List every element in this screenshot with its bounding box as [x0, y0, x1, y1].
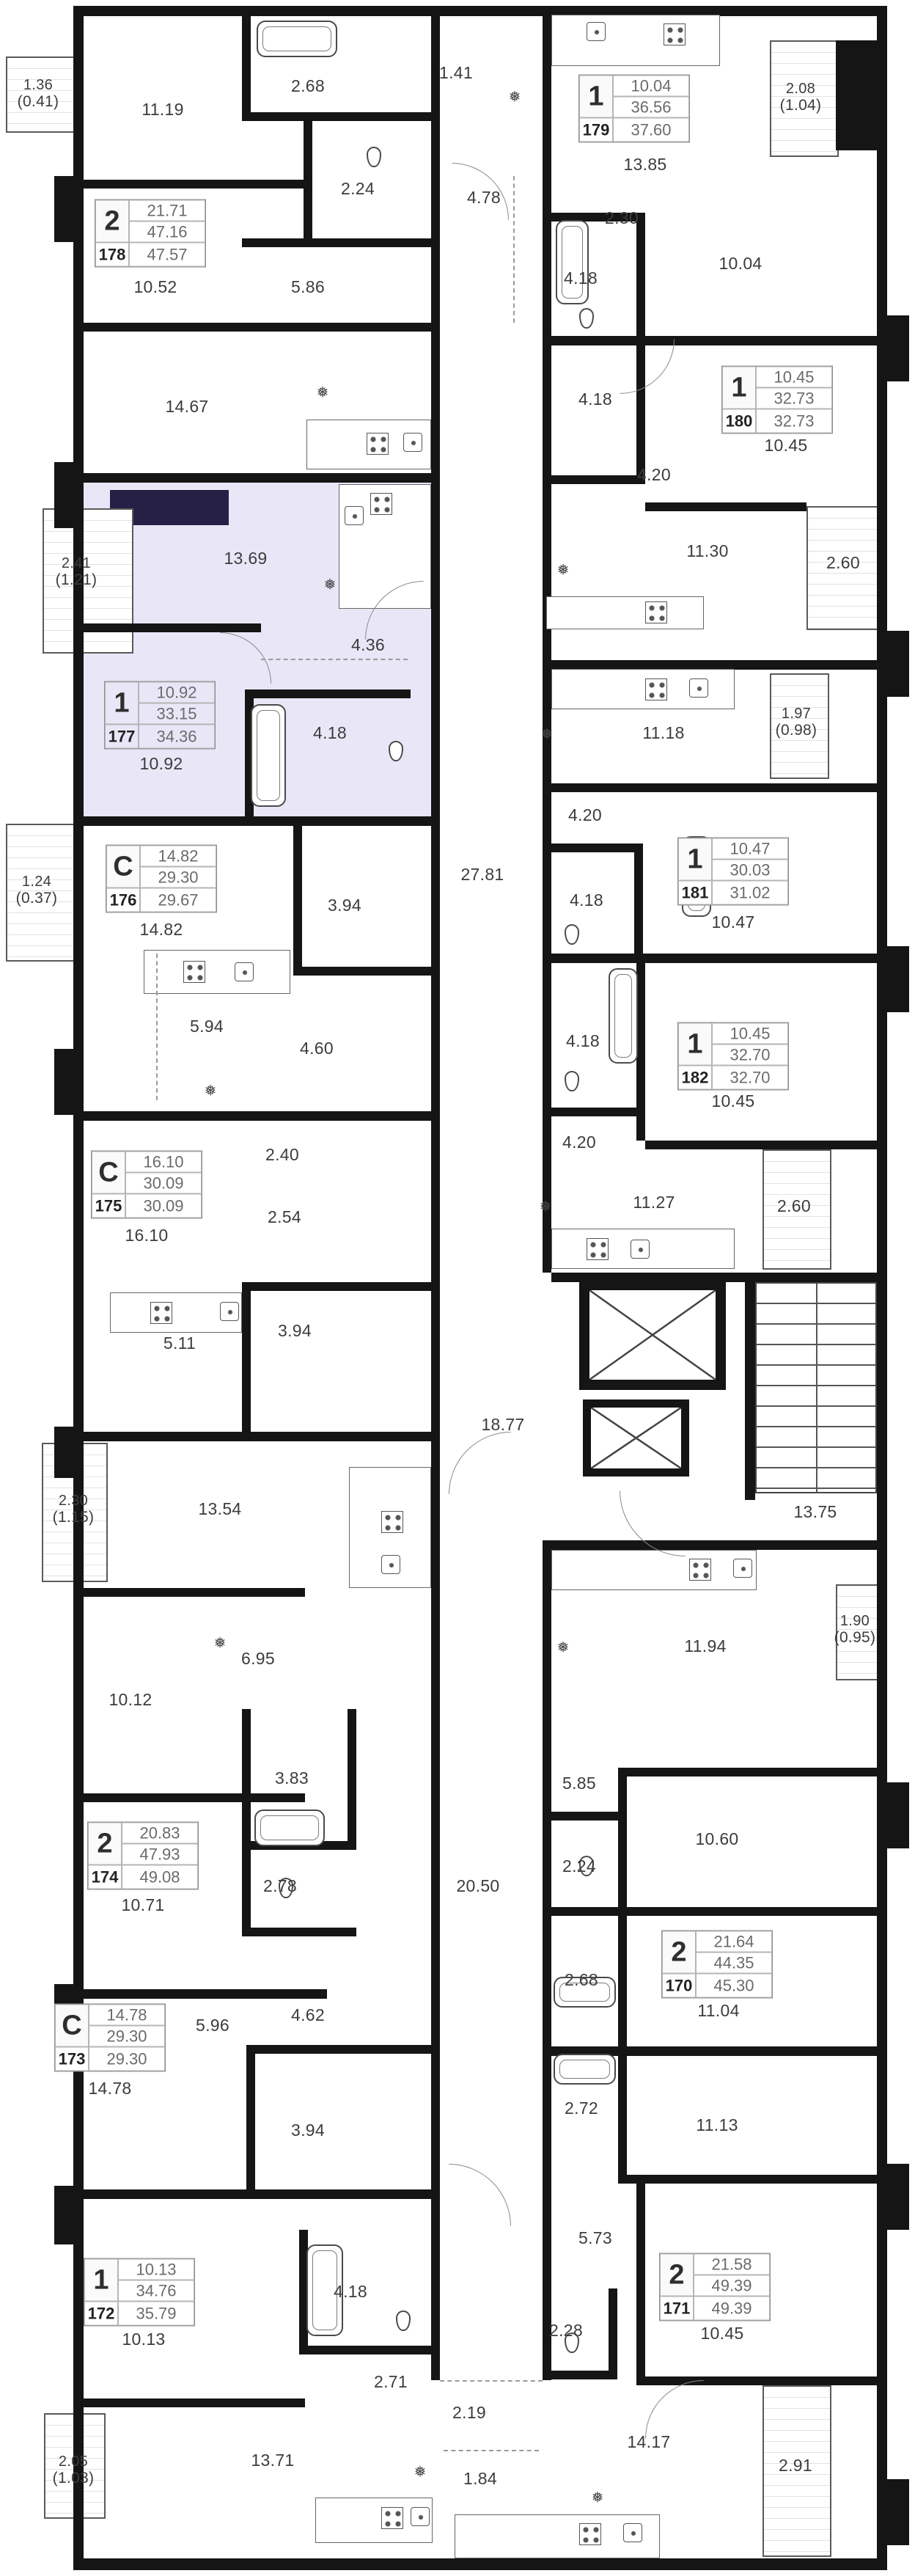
wall	[84, 1111, 431, 1121]
stairwell	[755, 1282, 877, 1493]
room-area-label: 4.36	[351, 636, 385, 655]
room-area-label: 10.45	[711, 1092, 754, 1111]
total-area: 49.08	[122, 1865, 198, 1889]
fridge-icon: ❅	[214, 1634, 227, 1653]
floor-plan: ❅❅❅❅❅❅❅❅❅❅❅ 11.192.682.245.8610.5214.671…	[0, 0, 915, 2576]
sink-icon	[220, 1302, 239, 1321]
wall	[551, 954, 877, 963]
column-pier	[887, 2479, 909, 2545]
wall	[84, 1588, 305, 1597]
door-arc	[449, 2164, 511, 2226]
area-without-balcony: 30.03	[712, 860, 788, 881]
room-area-label: 5.96	[196, 2016, 229, 2035]
wall	[73, 6, 84, 2570]
room-area-label: 10.47	[711, 913, 754, 932]
sink-icon	[631, 1240, 650, 1259]
apartment-type: 1	[722, 367, 756, 409]
wall	[84, 1793, 305, 1802]
stove-icon	[664, 23, 686, 45]
wall	[618, 1768, 627, 2046]
room-area-label: 2.78	[263, 1877, 297, 1896]
balcony-area-label: 1.97(0.98)	[776, 706, 817, 739]
apartment-type: С	[106, 846, 140, 888]
door-arc	[620, 339, 675, 394]
room-area-label: 10.60	[695, 1830, 738, 1849]
zone-dash	[444, 2450, 539, 2453]
balcony-counted-area: (0.95)	[834, 1629, 876, 1647]
room-area-label: 4.62	[291, 2006, 325, 2025]
room-area-label: 10.71	[121, 1896, 164, 1915]
room-area-label: 5.73	[578, 2229, 612, 2248]
wall	[618, 2046, 627, 2175]
bathtub	[257, 21, 337, 57]
wall	[551, 1108, 645, 1116]
living-area: 10.13	[118, 2259, 194, 2280]
wall	[551, 2371, 617, 2379]
wall	[242, 1928, 356, 1936]
apartment-number: 173	[55, 2047, 89, 2071]
balcony-counted-area: (0.98)	[776, 722, 817, 739]
room-area-label: 1.41	[439, 64, 473, 83]
room-area-label: 11.27	[633, 1193, 675, 1212]
room-area-label: 4.18	[566, 1032, 600, 1051]
fridge-icon: ❅	[205, 1082, 217, 1100]
stove-icon	[370, 493, 392, 515]
sink-icon	[345, 506, 364, 525]
zone-dash	[261, 659, 408, 662]
room-area-label: 14.78	[88, 2079, 131, 2099]
bathtub	[254, 1810, 325, 1846]
room-area-label: 2.24	[562, 1857, 596, 1876]
living-area: 10.47	[712, 838, 788, 860]
apartment-info-box-178[interactable]: 221.7147.1617847.57	[95, 200, 206, 268]
apartment-number: 171	[660, 2297, 694, 2321]
room-area-label: 4.18	[570, 891, 603, 910]
kitchen-counter	[551, 1550, 757, 1590]
apartment-number: 170	[662, 1974, 696, 1998]
room-area-label: 10.92	[139, 755, 183, 774]
room-area-label: 14.67	[165, 398, 208, 417]
wall	[543, 1540, 551, 2380]
zone-dash	[156, 954, 159, 1100]
room-area-label: 2.19	[452, 2404, 486, 2423]
column-pier	[887, 1782, 909, 1848]
room-area-label: 4.18	[578, 390, 612, 409]
room-area-label: 11.18	[642, 724, 684, 743]
balcony-counted-area: (1.21)	[56, 571, 98, 589]
balcony-area-label: 2.05(1.03)	[53, 2454, 95, 2487]
wall	[73, 2558, 887, 2570]
wall	[84, 473, 431, 483]
room-area-label: 5.85	[562, 1774, 596, 1793]
area-without-balcony: 36.56	[613, 97, 689, 118]
wall	[84, 180, 305, 189]
wall	[84, 623, 261, 632]
wall	[242, 1282, 251, 1432]
balcony-counted-area: (1.03)	[53, 2470, 95, 2487]
total-area: 49.39	[694, 2297, 770, 2321]
room-area-label: 2.72	[565, 2099, 598, 2118]
room-area-label: 3.94	[291, 2121, 325, 2140]
sink-icon	[689, 678, 708, 698]
wall	[431, 15, 440, 2380]
fridge-icon: ❅	[557, 1639, 570, 1657]
stove-icon	[183, 961, 205, 983]
wall	[636, 2376, 877, 2385]
apartment-info-box-172[interactable]: 110.1334.7617235.79	[84, 2258, 195, 2327]
room-area-label: 3.83	[275, 1769, 309, 1788]
sink-icon	[623, 2523, 642, 2542]
sink-icon	[733, 1559, 752, 1578]
wall	[84, 2189, 431, 2199]
fridge-icon: ❅	[317, 384, 329, 402]
wall	[84, 816, 431, 826]
wall	[304, 121, 312, 238]
wall	[636, 2175, 645, 2376]
bathtub	[251, 704, 286, 807]
apartment-number: 179	[579, 118, 613, 142]
total-area: 34.36	[139, 725, 215, 749]
living-area: 10.92	[139, 682, 215, 703]
room-area-label: 3.94	[328, 896, 361, 915]
room-area-label: 10.04	[719, 255, 762, 274]
apartment-type: 2	[660, 2254, 694, 2297]
balcony-counted-area: (1.15)	[53, 1509, 95, 1526]
apartment-info-box-176[interactable]: С14.8229.3017629.67	[106, 845, 217, 913]
apartment-type: 1	[678, 1023, 712, 1066]
living-area: 10.45	[756, 367, 832, 388]
room-area-label: 16.10	[125, 1226, 168, 1245]
area-without-balcony: 33.15	[139, 703, 215, 725]
room-area-label: 20.50	[456, 1877, 499, 1896]
column-pier	[54, 1427, 73, 1478]
column-pier	[887, 2164, 909, 2230]
room-area-label: 2.30	[605, 209, 639, 228]
area-without-balcony: 44.35	[696, 1953, 772, 1974]
room-area-label: 4.18	[313, 724, 347, 743]
apartment-number: 177	[105, 725, 139, 749]
wall	[245, 689, 411, 698]
living-area: 16.10	[125, 1152, 202, 1173]
sink-icon	[235, 962, 254, 981]
wall	[246, 2045, 431, 2054]
fridge-icon: ❅	[414, 2463, 427, 2481]
stove-icon	[689, 1559, 711, 1581]
apartment-type: 1	[678, 838, 712, 881]
apartment-number: 174	[88, 1865, 122, 1889]
apartment-number: 180	[722, 409, 756, 433]
stove-icon	[587, 1238, 609, 1260]
apartment-number: 176	[106, 888, 140, 912]
stove-icon	[645, 678, 667, 700]
stove-icon	[381, 1511, 403, 1533]
elevator-shaft	[583, 1399, 689, 1477]
door-arc	[645, 2380, 704, 2439]
wall	[551, 1540, 877, 1550]
apartment-info-box-171[interactable]: 221.5849.3917149.39	[659, 2253, 771, 2321]
apartment-info-box-173[interactable]: С14.7829.3017329.30	[54, 2004, 166, 2072]
wall	[84, 1432, 431, 1441]
living-area: 21.64	[696, 1931, 772, 1953]
living-area: 14.78	[89, 2005, 165, 2026]
column-pier	[54, 2186, 73, 2244]
wall	[242, 1709, 251, 1929]
fridge-icon: ❅	[557, 561, 570, 579]
apartment-type: С	[55, 2005, 89, 2047]
column-pier	[54, 462, 73, 528]
balcony-area-label: 2.30(1.15)	[53, 1493, 95, 1526]
room-area-label: 2.68	[291, 77, 325, 96]
kitchen-counter	[144, 950, 290, 994]
area-without-balcony: 30.09	[125, 1173, 202, 1194]
wall	[745, 1273, 755, 1500]
stove-icon	[367, 433, 389, 455]
wall	[84, 1989, 327, 1999]
wall	[551, 783, 877, 792]
room-area-label: 2.28	[549, 2321, 583, 2341]
apartment-number: 181	[678, 881, 712, 905]
total-area: 45.30	[696, 1974, 772, 1998]
room-area-label: 11.94	[684, 1637, 726, 1656]
wall	[84, 323, 431, 332]
sink-icon	[381, 1555, 400, 1574]
room-area-label: 6.95	[241, 1650, 275, 1669]
stair-divider	[816, 1284, 817, 1492]
wall	[551, 1812, 618, 1821]
kitchen-counter	[546, 596, 704, 629]
wall	[242, 238, 431, 247]
toilet-icon	[367, 147, 381, 167]
wall	[618, 2175, 877, 2184]
toilet-icon	[565, 924, 579, 945]
room-area-label: 2.68	[565, 1971, 598, 1990]
wall	[242, 112, 431, 121]
room-area-label: 10.45	[700, 2324, 743, 2343]
bathtub	[609, 968, 638, 1064]
stove-icon	[579, 2523, 601, 2545]
balcony-area-label: 2.08(1.04)	[780, 81, 822, 114]
room-area-label: 27.81	[460, 866, 504, 885]
apartment-info-box-181[interactable]: 110.4730.0318131.02	[677, 838, 789, 906]
area-without-balcony: 34.76	[118, 2280, 194, 2302]
room-area-label: 2.60	[777, 1197, 811, 1216]
room-area-label: 11.19	[142, 100, 183, 120]
wall	[299, 2346, 431, 2354]
toilet-icon	[565, 1071, 579, 1091]
wall	[246, 2045, 255, 2189]
apartment-type: С	[92, 1152, 125, 1194]
apartment-type: 2	[662, 1931, 696, 1974]
wall	[551, 475, 645, 484]
zone-dash	[440, 2380, 543, 2383]
apartment-info-box-170[interactable]: 221.6444.3517045.30	[661, 1931, 773, 1999]
room-area-label: 2.40	[265, 1146, 299, 1165]
room-area-label: 4.78	[467, 189, 501, 208]
wall	[645, 1141, 877, 1149]
total-area: 47.57	[129, 243, 205, 267]
toilet-icon	[396, 2310, 411, 2331]
total-area: 29.67	[140, 888, 216, 912]
room-area-label: 5.11	[163, 1334, 196, 1353]
total-area: 30.09	[125, 1194, 202, 1218]
door-arc	[449, 1432, 511, 1494]
wall	[73, 6, 887, 16]
apartment-number: 182	[678, 1066, 712, 1090]
apartment-type: 1	[84, 2259, 118, 2302]
balcony-area-label: 1.90(0.95)	[834, 1613, 876, 1647]
room-area-label: 13.71	[251, 2451, 294, 2470]
room-area-label: 1.84	[463, 2470, 497, 2489]
wall	[242, 1282, 431, 1291]
living-area: 10.45	[712, 1023, 788, 1044]
balcony-area-label: 2.41(1.21)	[56, 555, 98, 589]
room-area-label: 4.20	[637, 466, 671, 485]
stove-icon	[150, 1302, 172, 1324]
area-without-balcony: 29.30	[140, 867, 216, 888]
fridge-icon: ❅	[540, 1198, 552, 1216]
bathtub	[556, 220, 589, 304]
fridge-icon: ❅	[541, 725, 554, 744]
zone-dash	[513, 176, 516, 323]
apartment-number: 172	[84, 2302, 118, 2326]
apartment-info-box-179[interactable]: 110.0436.5617937.60	[578, 75, 690, 143]
apartment-info-box-174[interactable]: 220.8347.9317449.08	[87, 1822, 199, 1890]
balcony-counted-area: (1.04)	[780, 97, 822, 114]
total-area: 37.60	[613, 118, 689, 142]
apartment-info-box-182[interactable]: 110.4532.7018232.70	[677, 1022, 789, 1091]
area-without-balcony: 49.39	[694, 2275, 770, 2297]
living-area: 21.58	[694, 2254, 770, 2275]
column-pier	[54, 1049, 73, 1115]
apartment-type: 1	[579, 76, 613, 118]
room-area-label: 4.18	[564, 269, 598, 288]
area-without-balcony: 29.30	[89, 2026, 165, 2047]
room-area-label: 13.85	[623, 155, 666, 175]
total-area: 32.70	[712, 1066, 788, 1090]
apartment-number: 175	[92, 1194, 125, 1218]
room-area-label: 4.20	[568, 806, 602, 825]
stove-icon	[381, 2507, 403, 2529]
wall	[293, 826, 302, 976]
room-area-label: 11.30	[686, 542, 728, 561]
wall	[877, 6, 887, 2570]
balcony-counted-area: (0.37)	[16, 890, 58, 907]
wall	[84, 2398, 305, 2407]
room-area-label: 3.94	[278, 1322, 312, 1341]
balcony-counted-area: (0.41)	[18, 93, 59, 111]
room-area-label: 14.82	[139, 921, 183, 940]
fridge-icon: ❅	[324, 576, 337, 594]
area-without-balcony: 47.16	[129, 222, 205, 243]
wall	[627, 1907, 877, 1916]
total-area: 31.02	[712, 881, 788, 905]
fridge-icon: ❅	[509, 88, 521, 106]
elevator-shaft	[579, 1280, 726, 1390]
room-area-label: 18.77	[481, 1416, 524, 1435]
apartment-type: 1	[105, 682, 139, 725]
wall	[551, 1907, 618, 1916]
balcony-area-label: 1.24(0.37)	[16, 874, 58, 907]
wall	[242, 15, 251, 121]
room-area-label: 13.54	[198, 1500, 241, 1519]
room-area-label: 11.04	[697, 2002, 739, 2021]
room-area-label: 5.86	[291, 278, 325, 297]
living-area: 20.83	[122, 1823, 198, 1844]
room-area-label: 4.20	[562, 1133, 596, 1152]
room-area-label: 13.69	[224, 549, 267, 568]
room-area-label: 10.12	[109, 1691, 152, 1710]
sink-icon	[403, 433, 422, 452]
balcony-area-label: 1.36(0.41)	[18, 77, 59, 111]
toilet-icon	[579, 308, 594, 329]
total-area: 35.79	[118, 2302, 194, 2326]
living-area: 21.71	[129, 200, 205, 222]
living-area: 10.04	[613, 76, 689, 97]
apartment-type: 2	[88, 1823, 122, 1865]
total-area: 32.73	[756, 409, 832, 433]
room-area-label: 5.94	[190, 1017, 224, 1036]
total-area: 29.30	[89, 2047, 165, 2071]
wall	[543, 15, 551, 1273]
stove-icon	[645, 601, 667, 623]
column-pier	[54, 176, 73, 242]
room-area-label: 2.71	[374, 2373, 408, 2392]
apartment-info-box-180[interactable]: 110.4532.7318032.73	[721, 366, 833, 434]
wall	[551, 336, 877, 345]
room-area-label: 10.13	[122, 2330, 165, 2349]
fridge-icon: ❅	[592, 2489, 604, 2507]
column-pier	[887, 631, 909, 697]
area-without-balcony: 32.70	[712, 1044, 788, 1066]
room-area-label: 10.45	[764, 436, 807, 455]
room-area-label: 11.13	[696, 2116, 738, 2135]
wall	[634, 844, 643, 954]
wall	[609, 2288, 617, 2376]
column-pier	[887, 946, 909, 1012]
kitchen-counter	[551, 15, 720, 66]
bathtub	[554, 2054, 616, 2085]
wall	[348, 1709, 356, 1848]
room-area-label: 4.18	[334, 2283, 367, 2302]
room-area-label: 2.60	[826, 554, 860, 573]
apartment-info-box-177[interactable]: 110.9233.1517734.36	[104, 681, 216, 750]
wall	[645, 502, 806, 511]
room-area-label: 10.52	[133, 278, 177, 297]
wall	[636, 213, 645, 336]
room-area-label: 14.17	[627, 2433, 670, 2452]
room-area-label: 13.75	[793, 1503, 837, 1522]
apartment-type: 2	[95, 200, 129, 243]
sink-icon	[411, 2507, 430, 2526]
wall	[293, 967, 431, 976]
area-without-balcony: 32.73	[756, 388, 832, 409]
room-area-label: 2.54	[268, 1208, 301, 1227]
room-area-label: 2.91	[779, 2456, 812, 2476]
wall	[618, 1768, 877, 1777]
apartment-number: 178	[95, 243, 129, 267]
column-pier	[887, 315, 909, 381]
living-area: 14.82	[140, 846, 216, 867]
apartment-info-box-175[interactable]: С16.1030.0917530.09	[91, 1151, 202, 1219]
room-area-label: 2.24	[341, 180, 375, 199]
area-without-balcony: 47.93	[122, 1844, 198, 1865]
sink-icon	[587, 22, 606, 41]
wall	[836, 40, 877, 150]
room-area-label: 4.60	[300, 1039, 334, 1058]
wall	[551, 844, 643, 852]
